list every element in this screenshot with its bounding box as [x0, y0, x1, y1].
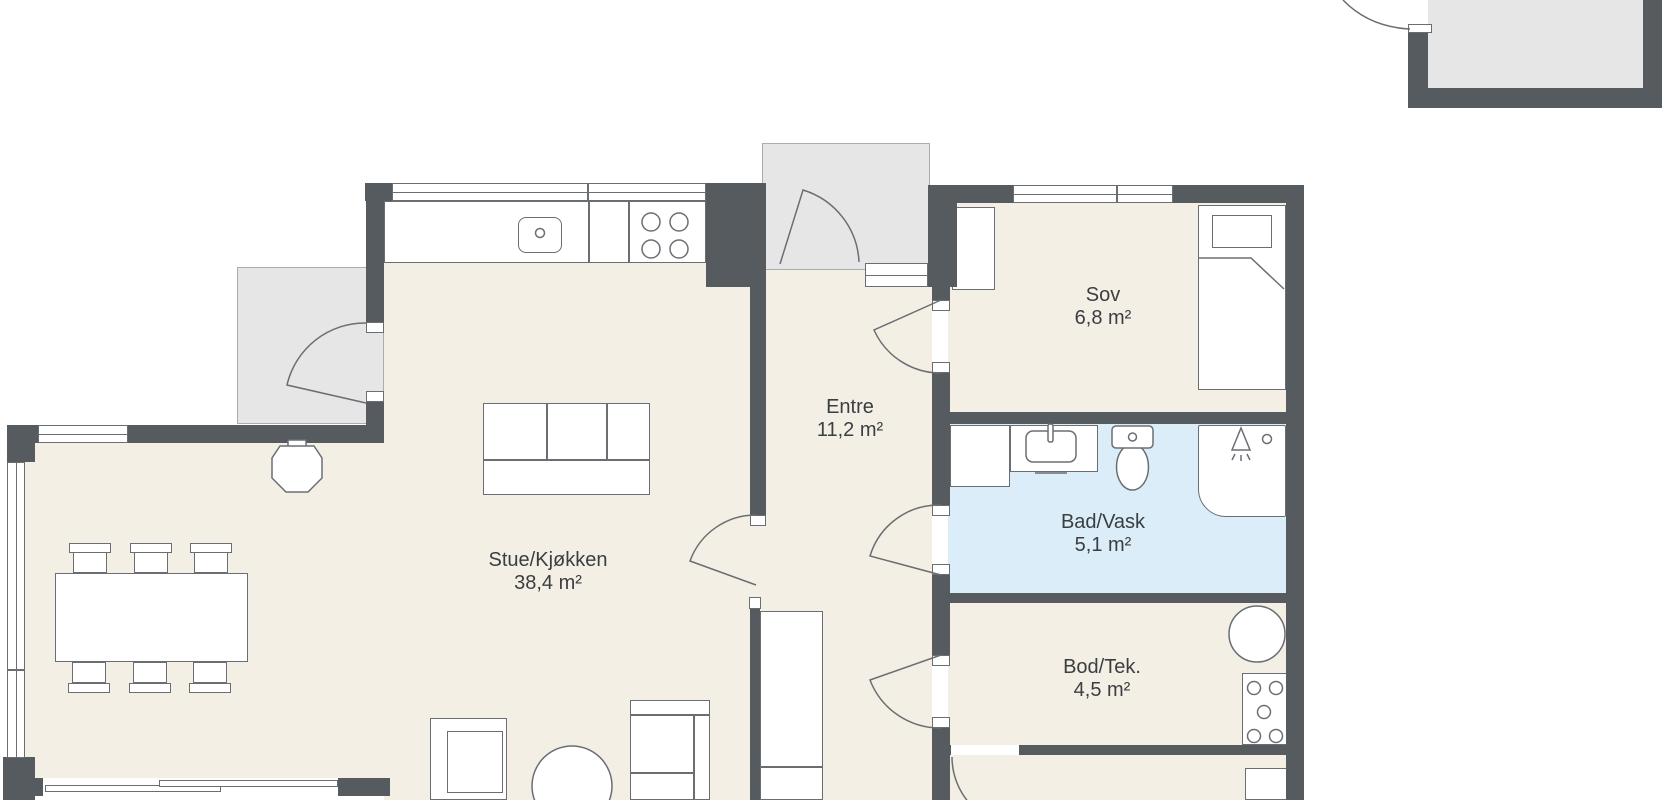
armchair-line — [630, 772, 694, 774]
floor-plan: Stue/Kjøkken 38,4 m² Entre 11,2 m² Sov 6… — [0, 0, 1670, 800]
chair-back — [189, 683, 231, 693]
wall — [1643, 0, 1662, 108]
window — [392, 183, 588, 201]
wall — [366, 400, 384, 427]
window-sidelight — [865, 263, 928, 287]
room-area: 38,4 m² — [489, 572, 608, 595]
door-jamb — [932, 655, 950, 666]
shower — [1198, 425, 1286, 517]
dining-table — [55, 573, 248, 662]
armchair-seat — [447, 731, 503, 793]
wall — [7, 425, 35, 462]
window-divider — [7, 669, 25, 671]
bed-pillow — [1212, 215, 1272, 248]
room-label-entre: Entre 11,2 m² — [817, 396, 883, 442]
terrace — [237, 267, 384, 424]
door-jamb — [932, 362, 950, 373]
door-jamb — [932, 505, 950, 516]
neighbor-structure-floor — [1428, 0, 1643, 90]
window — [588, 183, 706, 201]
room-name: Stue/Kjøkken — [489, 549, 608, 572]
entry-porch — [762, 143, 930, 270]
kitchen-sink — [518, 217, 562, 253]
room-name: Bod/Tek. — [1063, 656, 1141, 679]
wall — [750, 597, 760, 800]
door-jamb — [932, 300, 950, 311]
door-jamb — [750, 515, 766, 526]
counter-divider — [588, 201, 590, 263]
wall — [750, 262, 766, 515]
floor-bottom-room — [948, 755, 1286, 800]
window-divider — [1116, 185, 1118, 203]
chair-seat — [72, 662, 106, 683]
window — [1013, 185, 1173, 203]
room-area: 11,2 m² — [817, 419, 883, 442]
electrical-panel — [1242, 673, 1288, 745]
sofa-seat-line — [483, 459, 650, 461]
wall — [940, 412, 1286, 424]
hall-wardrobe — [760, 611, 823, 800]
chair-seat — [133, 662, 167, 683]
room-label-sov: Sov 6,8 m² — [1075, 284, 1132, 330]
door-arc-neighbor — [1343, 0, 1410, 29]
wall — [3, 778, 43, 796]
door-jamb — [1408, 24, 1432, 33]
door-jamb — [932, 717, 950, 728]
sofa-cushion-line — [546, 403, 548, 460]
sofa-cushion-line — [606, 403, 608, 460]
room-label-bod: Bod/Tek. 4,5 m² — [1063, 656, 1141, 702]
room-area: 5,1 m² — [1061, 534, 1145, 557]
wall — [338, 778, 390, 796]
door-opening — [951, 745, 1019, 755]
door-jamb — [366, 322, 384, 333]
window — [7, 462, 25, 758]
wall — [932, 728, 950, 800]
wall — [940, 593, 1304, 603]
wall — [932, 575, 950, 655]
room-area: 6,8 m² — [1075, 307, 1132, 330]
wall — [1408, 88, 1662, 108]
door-jamb — [366, 391, 384, 402]
sink-vanity — [1010, 425, 1098, 472]
cabinet — [1245, 768, 1288, 800]
chair-back — [129, 683, 171, 693]
wall — [928, 187, 957, 287]
chair-seat — [134, 552, 168, 573]
chair-back — [68, 683, 110, 693]
sliding-door-panel — [159, 780, 338, 787]
sofa — [483, 403, 650, 495]
room-name: Bad/Vask — [1061, 511, 1145, 534]
wall — [932, 287, 950, 300]
chair-seat — [73, 552, 107, 573]
door-jamb — [932, 564, 950, 575]
chair-seat — [193, 662, 227, 683]
room-area: 4,5 m² — [1063, 679, 1141, 702]
washing-machine — [950, 425, 1010, 487]
wall — [366, 183, 384, 322]
counter-divider — [628, 201, 630, 263]
wall — [1286, 185, 1304, 800]
bedroom-wardrobe — [952, 207, 995, 290]
chair-seat — [194, 552, 228, 573]
room-label-bad: Bad/Vask 5,1 m² — [1061, 511, 1145, 557]
door-jamb — [749, 597, 761, 609]
window — [38, 425, 128, 443]
armchair-line — [630, 714, 710, 716]
wardrobe-divider — [760, 766, 823, 768]
room-label-stue: Stue/Kjøkken 38,4 m² — [489, 549, 608, 595]
armchair-line — [693, 714, 695, 800]
wall — [932, 373, 950, 505]
room-name: Entre — [817, 396, 883, 419]
room-name: Sov — [1075, 284, 1132, 307]
